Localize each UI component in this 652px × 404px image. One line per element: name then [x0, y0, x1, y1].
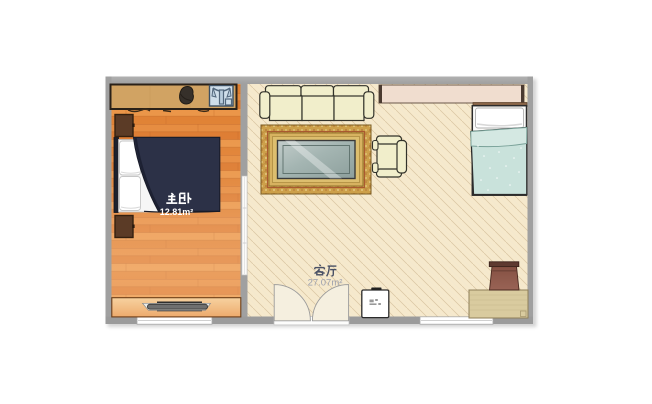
- svg-text:12.81m²: 12.81m²: [160, 207, 194, 217]
- svg-text:27.07m²: 27.07m²: [308, 278, 343, 289]
